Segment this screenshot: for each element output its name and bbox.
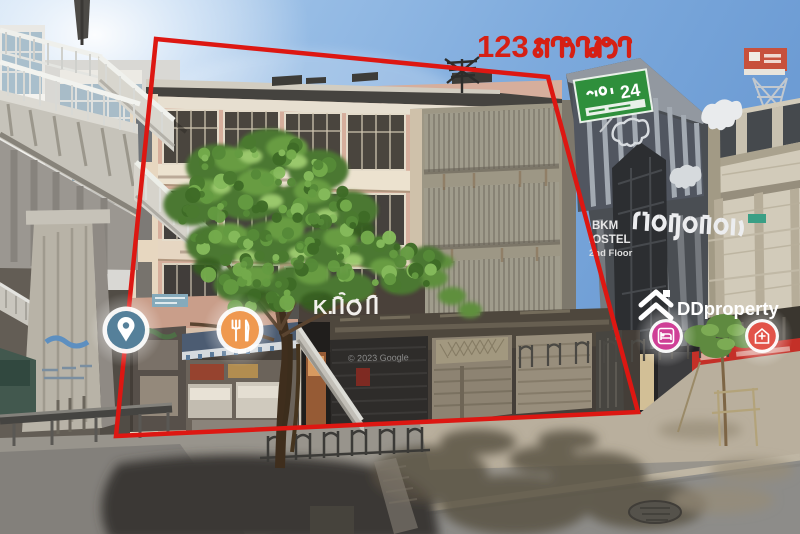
svg-text:123: 123 — [477, 29, 529, 64]
svg-text:K.: K. — [313, 297, 333, 319]
svg-text:© 2023 Google: © 2023 Google — [348, 352, 409, 363]
svg-text:24: 24 — [619, 80, 642, 103]
svg-text:DDproperty: DDproperty — [677, 298, 779, 319]
svg-text:BKM: BKM — [592, 220, 618, 232]
